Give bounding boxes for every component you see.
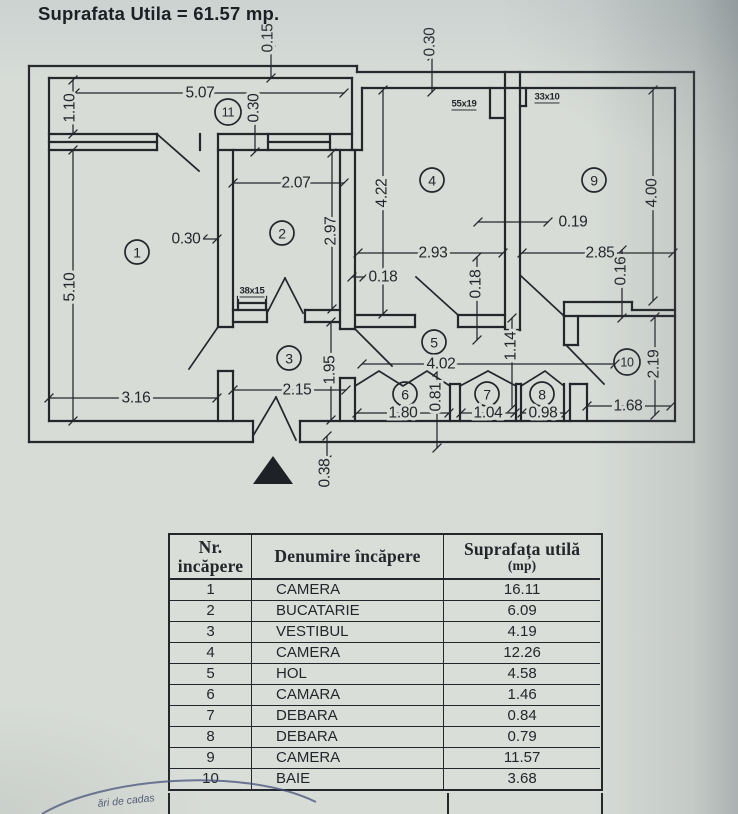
plan-line: [253, 397, 276, 436]
dimension-label: 2.97: [323, 217, 340, 246]
room-number: 10: [620, 356, 634, 370]
accordion-door-zigzag: [460, 371, 516, 386]
dimension-label: 1.14: [503, 331, 520, 361]
dimension-label: 1.80: [389, 405, 419, 422]
plan-line: [157, 134, 199, 171]
plan-line: [356, 330, 392, 366]
dimension-label: 5.07: [186, 85, 215, 102]
cell-room-name: CAMERA: [252, 580, 444, 600]
dimension-label: 0.15: [260, 24, 277, 53]
header-line: (mp): [508, 559, 537, 574]
cell-room-number: 3: [170, 621, 252, 642]
cell-room-area: 16.11: [444, 580, 600, 600]
room-areas-table: Nr. incăpere Denumire încăpere Suprafața…: [168, 533, 603, 791]
room-number: 3: [285, 351, 293, 367]
cell-room-area: 4.19: [444, 621, 600, 642]
dimension-label: 4.00: [644, 178, 661, 208]
dimension-label: 0.18: [369, 269, 398, 286]
scanned-floor-plan-document: 1234567891011 0.150.305.071.100.302.072.…: [0, 0, 738, 814]
header-line: Denumire încăpere: [274, 547, 420, 566]
dimension-label: 1.04: [474, 405, 504, 422]
cell-room-number: 8: [170, 726, 252, 747]
room-number: 6: [401, 387, 409, 403]
table-header-row: Nr. incăpere Denumire încăpere Suprafața…: [170, 535, 601, 580]
dimension-label: 0.30: [172, 231, 202, 248]
room-number: 8: [538, 387, 546, 403]
dimension-label: 2.85: [586, 245, 615, 262]
dimension-label: 0.19: [559, 214, 588, 231]
cell-room-name: VESTIBUL: [252, 621, 444, 642]
room-number: 4: [428, 173, 436, 189]
cell-room-area: 6.09: [444, 600, 600, 621]
room-number: 2: [278, 226, 286, 242]
floor-plan: 1234567891011 0.150.305.071.100.302.072.…: [0, 0, 738, 530]
dimension-label: 0.98: [529, 405, 558, 422]
pillar-size-labels: 55x1933x1038x15: [240, 92, 560, 297]
plan-line: [189, 327, 218, 369]
cell-room-number: 1: [170, 580, 252, 600]
dimension-label: 4.22: [374, 179, 391, 208]
pillar-size-label: 38x15: [240, 286, 266, 297]
dimension-label: 0.81: [428, 383, 445, 412]
pillar-size-label: 33x10: [535, 92, 560, 103]
cell-room-area: 11.57: [444, 747, 600, 768]
cell-room-number: 6: [170, 684, 252, 705]
dimension-label: 4.02: [427, 356, 456, 373]
dimension-label: 0.30: [422, 27, 439, 57]
entrance-arrow-icon: [253, 456, 293, 484]
room-number: 9: [590, 173, 598, 189]
cell-room-name: DEBARA: [252, 705, 444, 726]
stamp-fragment: ări de cadas: [16, 758, 346, 814]
room-number: 7: [483, 387, 491, 403]
cell-room-number: 4: [170, 642, 252, 663]
plan-line: [416, 277, 457, 314]
dimension-label: 0.38: [317, 459, 334, 488]
header-line: incăpere: [178, 557, 243, 576]
dimension-label: 5.10: [62, 272, 79, 302]
dimension-label: 1.10: [62, 93, 79, 123]
cell-room-area: 4.58: [444, 663, 600, 684]
dimension-label: 0.16: [613, 257, 630, 286]
dimension-label: 2.15: [283, 382, 312, 399]
total-area-text: Suprafata Utila = 61.57 mp.: [38, 3, 279, 25]
header-nr-incapere: Nr. incăpere: [170, 535, 252, 580]
cell-room-area: 0.84: [444, 705, 600, 726]
pillar-size-label: 55x19: [452, 99, 477, 110]
room-number: 5: [430, 335, 438, 351]
cell-room-area: 0.79: [444, 726, 600, 747]
cell-room-name: DEBARA: [252, 726, 444, 747]
plan-line: [267, 278, 285, 313]
dimension-label: 2.07: [282, 175, 311, 192]
dimension-label: 2.19: [646, 350, 663, 379]
header-denumire-incapere: Denumire încăpere: [252, 535, 444, 580]
dimension-label: 0.18: [468, 270, 485, 299]
cell-room-name: CAMERA: [252, 642, 444, 663]
cell-room-number: 7: [170, 705, 252, 726]
plan-line: [285, 278, 303, 313]
dimension-label: 2.93: [419, 245, 448, 262]
cell-room-area: 1.46: [444, 684, 600, 705]
header-suprafata-utila: Suprafața utilă (mp): [444, 535, 600, 580]
dimension-label: 0.30: [246, 93, 263, 123]
cell-room-area: 12.26: [444, 642, 600, 663]
cell-room-name: CAMARA: [252, 684, 444, 705]
room-number: 11: [222, 106, 235, 120]
dimension-label: 1.68: [614, 398, 643, 415]
accordion-door-zigzag: [521, 371, 564, 386]
cell-room-name: HOL: [252, 663, 444, 684]
cell-room-number: 2: [170, 600, 252, 621]
room-number: 1: [133, 245, 141, 261]
stamp-text: ări de cadas: [97, 792, 156, 810]
header-line: Suprafața utilă: [464, 540, 580, 559]
cell-room-number: 5: [170, 663, 252, 684]
plan-line: [276, 397, 296, 440]
header-line: Nr.: [199, 538, 223, 557]
cell-room-area: 3.68: [444, 768, 600, 789]
dimension-label: 3.16: [122, 390, 151, 407]
dimension-label: 1.95: [322, 356, 339, 385]
plan-line: [521, 276, 563, 315]
cell-room-name: BUCATARIE: [252, 600, 444, 621]
stamp-arc: [42, 780, 316, 814]
